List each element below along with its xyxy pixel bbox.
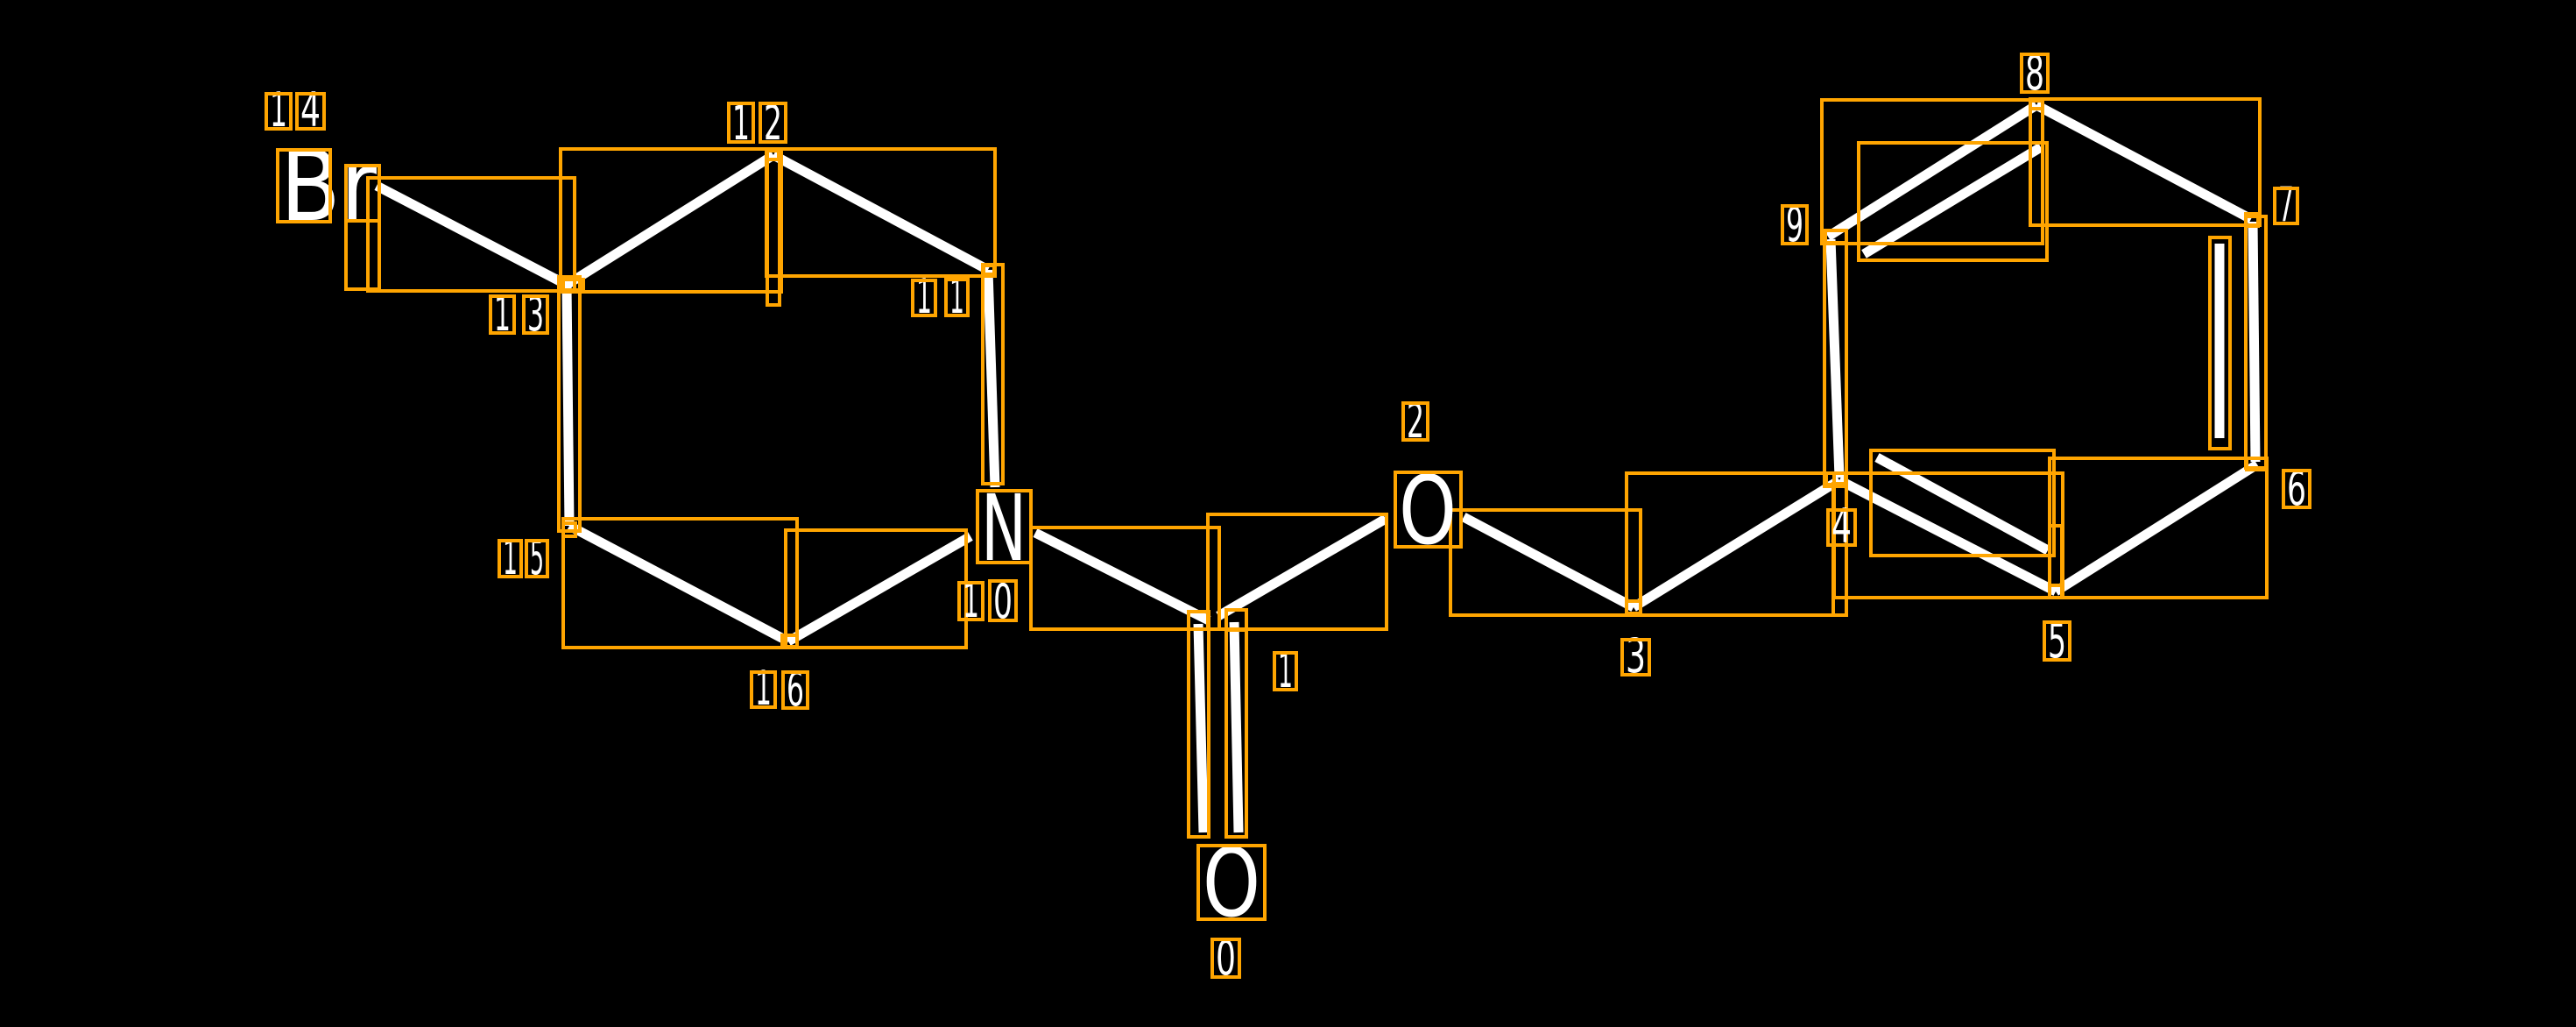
bond-5-6-line	[2056, 464, 2257, 591]
bond-7-8-line	[2036, 105, 2251, 219]
bond-10-1-line	[1035, 533, 1209, 620]
bond-2-3-line	[1464, 517, 1634, 607]
bond-6-7-line	[2253, 222, 2255, 462]
bond-12-11-line	[773, 155, 988, 270]
molecule-svg: BrNOO012345678910111213141516	[0, 0, 2576, 1027]
molecule-annotation-canvas: BrNOO012345678910111213141516	[0, 0, 2576, 1027]
bond-1-2-line	[1218, 519, 1386, 616]
bond-3-4-line	[1634, 480, 1839, 607]
bond-1-0-b-line	[1234, 622, 1239, 832]
bond-12-13-line	[567, 155, 773, 285]
bond-13-15-line	[567, 285, 569, 526]
bond-15-16-line	[569, 526, 788, 641]
bond-1-0-a-line	[1198, 624, 1203, 832]
bond-9-4-line	[1831, 239, 1839, 478]
bond-11-10-line	[988, 270, 995, 487]
bond-10-16-line	[788, 536, 970, 641]
bond-14-13-line	[377, 186, 567, 285]
bond-4-5-in-line	[1877, 457, 2048, 550]
artifact-at-12-bbox	[767, 151, 780, 305]
